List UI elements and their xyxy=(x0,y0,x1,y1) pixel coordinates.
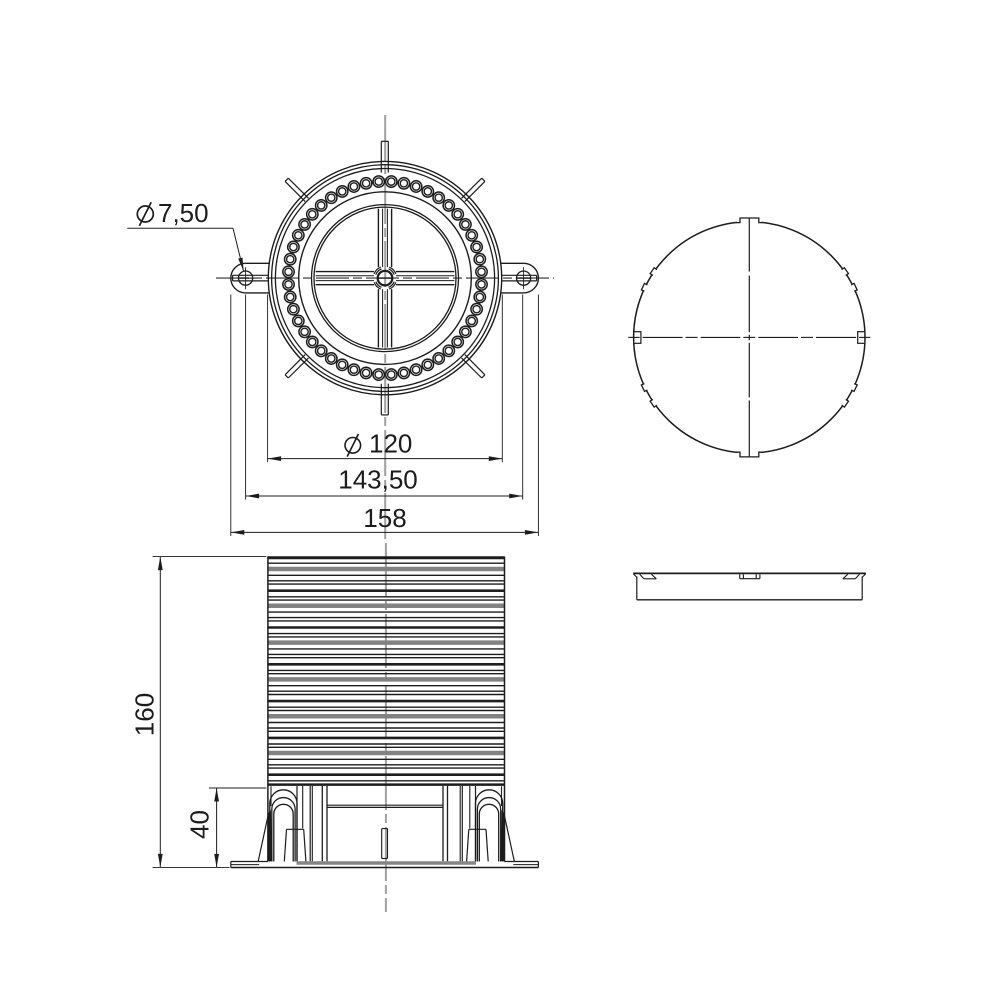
svg-text:143,50: 143,50 xyxy=(338,465,418,495)
svg-text:158: 158 xyxy=(363,503,406,533)
svg-text:7,50: 7,50 xyxy=(158,198,209,228)
svg-text:160: 160 xyxy=(130,693,160,736)
svg-text:120: 120 xyxy=(369,429,412,459)
svg-text:40: 40 xyxy=(185,810,215,839)
